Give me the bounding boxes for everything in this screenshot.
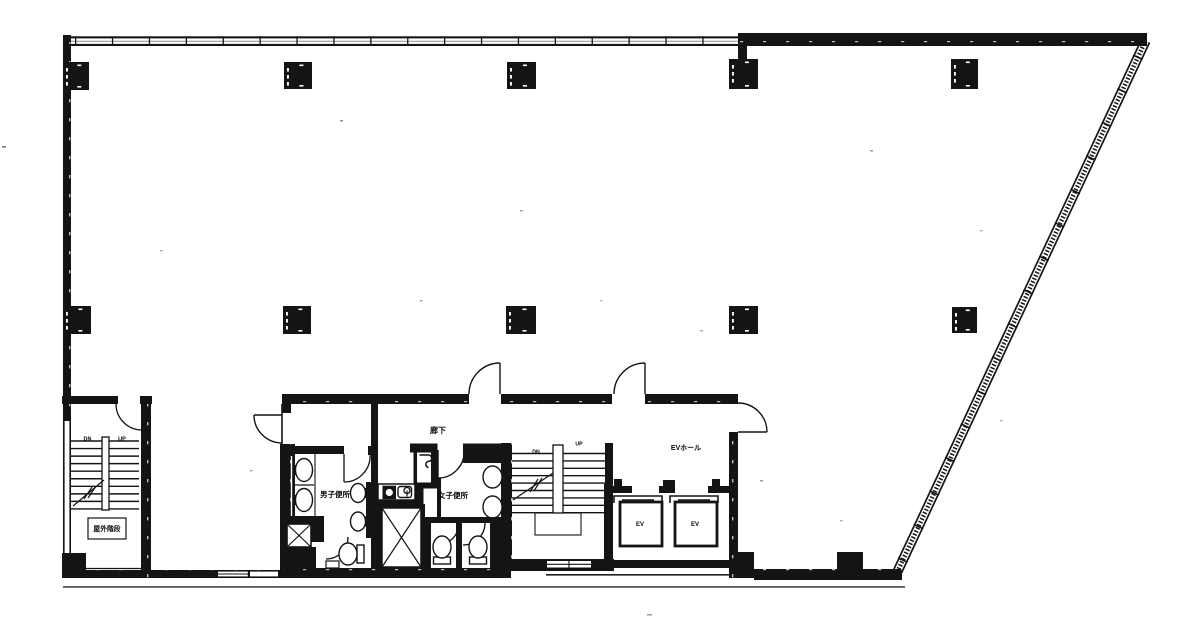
svg-text:EVホール: EVホール — [671, 444, 701, 452]
svg-text:UP: UP — [575, 442, 583, 448]
svg-text:DN: DN — [532, 450, 540, 456]
svg-text:EV: EV — [691, 522, 699, 528]
svg-text:屋外階段: 屋外階段 — [93, 524, 120, 533]
svg-text:UP: UP — [118, 437, 126, 443]
svg-text:廊下: 廊下 — [430, 425, 446, 435]
svg-text:DN: DN — [84, 437, 92, 443]
svg-text:EV: EV — [636, 522, 644, 528]
svg-text:男子便所: 男子便所 — [320, 489, 350, 499]
svg-text:女子便所: 女子便所 — [438, 490, 468, 500]
